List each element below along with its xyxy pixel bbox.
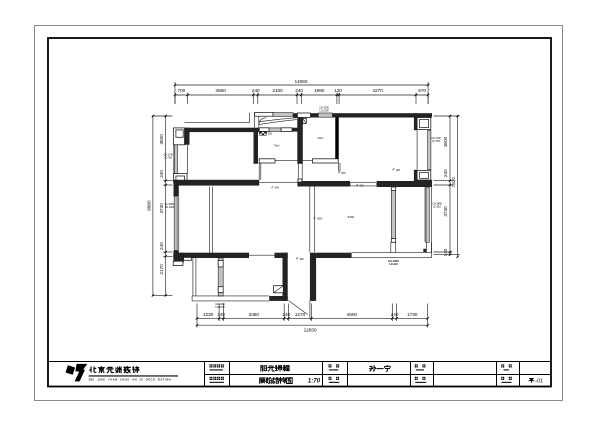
svg-text:3380: 3380 [249, 312, 260, 318]
svg-text:LD 750: LD 750 [164, 156, 172, 160]
svg-text:LD 610: LD 610 [433, 205, 441, 209]
svg-text:3730: 3730 [443, 206, 449, 217]
svg-text:1270: 1270 [295, 312, 306, 318]
svg-text:3600: 3600 [443, 136, 449, 147]
svg-text:3600: 3600 [159, 134, 165, 145]
svg-text:200: 200 [268, 132, 273, 136]
svg-text:LD 750: LD 750 [432, 139, 440, 143]
svg-text:240: 240 [391, 312, 399, 318]
svg-text:1730: 1730 [407, 312, 418, 318]
svg-text:7.8m²: 7.8m² [273, 144, 279, 148]
svg-text:240: 240 [159, 242, 165, 250]
svg-text:240: 240 [252, 88, 260, 94]
svg-text:14060: 14060 [294, 79, 307, 85]
svg-text:900: 900 [360, 184, 365, 188]
svg-text:BEI JING YUAN ZHOU AN DI: BEI JING YUAN ZHOU AN DI DECO RATION [89, 378, 171, 382]
svg-text:12830: 12830 [304, 328, 317, 334]
svg-text:3.8m²: 3.8m² [317, 136, 323, 140]
svg-text:7830: 7830 [451, 177, 457, 188]
svg-text:-01: -01 [535, 379, 543, 385]
svg-text:240: 240 [159, 170, 165, 178]
svg-text:LD 1290: LD 1290 [319, 108, 329, 112]
svg-text:2170: 2170 [159, 264, 165, 275]
svg-text:240: 240 [295, 88, 303, 94]
svg-text:LD 1400: LD 1400 [165, 205, 175, 209]
svg-text:800: 800 [341, 171, 346, 175]
svg-text:4270: 4270 [372, 88, 383, 94]
svg-text:140: 140 [443, 248, 449, 256]
svg-text:9980: 9980 [147, 200, 153, 211]
svg-text:1000: 1000 [317, 216, 323, 220]
svg-text:240: 240 [282, 312, 290, 318]
svg-text:1980: 1980 [314, 88, 325, 94]
svg-text:120: 120 [334, 88, 342, 94]
svg-text:2180: 2180 [272, 88, 283, 94]
svg-text:240: 240 [217, 312, 225, 318]
svg-text:900: 900 [396, 168, 401, 172]
svg-text:1230: 1230 [203, 312, 214, 318]
svg-text:4500: 4500 [347, 312, 358, 318]
svg-text:1:70: 1:70 [308, 377, 321, 384]
svg-text:LD 1070: LD 1070 [215, 305, 225, 309]
svg-text:900: 900 [300, 257, 305, 261]
svg-text:LD-110: LD-110 [389, 262, 398, 266]
svg-text:B:260: B:260 [348, 215, 355, 219]
svg-text:900: 900 [275, 186, 280, 190]
svg-text:670: 670 [418, 88, 426, 94]
svg-text:240: 240 [443, 169, 449, 177]
svg-text:700: 700 [177, 88, 185, 94]
svg-text:3660: 3660 [215, 88, 226, 94]
